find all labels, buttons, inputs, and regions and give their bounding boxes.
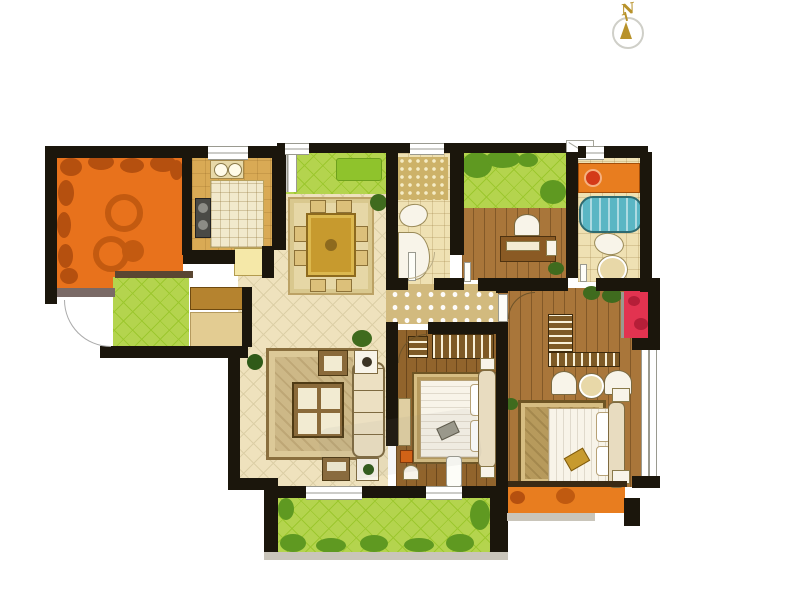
entry-threshold [115, 271, 193, 278]
terrace-plant [120, 158, 144, 173]
master-bath-door [580, 264, 587, 282]
master-bath-sink [584, 169, 602, 187]
garden-bush [404, 538, 434, 552]
stove-burner [198, 203, 208, 213]
wall [276, 486, 306, 498]
wall [462, 486, 492, 498]
balcony-plant [510, 491, 525, 504]
bathroom1-shower-area [398, 157, 448, 200]
wall [632, 476, 660, 488]
balcony-sill [507, 513, 595, 521]
bay-window [641, 350, 657, 476]
entry-floor [113, 277, 189, 348]
red-balcony-plant [634, 318, 648, 330]
entry-door-arc [64, 300, 111, 347]
armchair-cushion [324, 356, 342, 371]
wall [386, 278, 408, 290]
balcony-plant [556, 488, 575, 504]
plant [247, 354, 263, 370]
wall [624, 498, 640, 526]
wall [228, 356, 240, 484]
nightstand [480, 358, 495, 370]
side-table-decor [362, 357, 372, 367]
wall [392, 486, 426, 498]
bedroom2-wardrobe [432, 334, 494, 359]
window [208, 146, 248, 160]
dining-chair [310, 200, 326, 213]
dining-chair [310, 279, 326, 292]
refrigerator [234, 248, 263, 276]
master-door [498, 294, 508, 322]
garden-bush [280, 534, 306, 552]
terrace-table [122, 240, 144, 262]
plant [352, 330, 372, 347]
dining-table-centerpiece [325, 239, 337, 251]
coffee-table-pane [298, 388, 317, 409]
wall [434, 278, 464, 290]
study-door [464, 262, 471, 282]
terrace-chair [105, 194, 143, 232]
garden-bush [360, 535, 388, 552]
armchair [318, 350, 348, 376]
stove-burner [198, 220, 208, 230]
desk-chair [514, 214, 540, 236]
window [306, 486, 362, 500]
desk-monitor [506, 241, 540, 251]
wall [450, 143, 464, 255]
wall [45, 146, 57, 304]
window [285, 143, 309, 155]
floorplan-canvas: N [0, 0, 800, 611]
kitchen-sink-bowl [214, 163, 228, 177]
side-table [354, 350, 378, 374]
wall [496, 322, 508, 490]
wall [462, 143, 566, 153]
terrace-plant [58, 180, 74, 206]
coffee-table-pane [298, 413, 317, 434]
master-wardrobe-h [548, 352, 620, 367]
wall [183, 250, 235, 264]
wall [100, 346, 248, 358]
dining-chair [336, 279, 352, 292]
balcony-bench [336, 158, 382, 181]
terrace-plant [60, 268, 78, 284]
wall [182, 157, 192, 255]
compass-north-label: N [620, 1, 636, 18]
wall [396, 143, 410, 153]
wall [496, 283, 508, 293]
master-chair [551, 371, 577, 395]
terrace-plant [58, 244, 73, 268]
wall [362, 486, 394, 498]
red-balcony-window-line [621, 292, 624, 338]
red-balcony-plant [628, 296, 640, 306]
dining-chair [336, 200, 352, 213]
terrace-plant [57, 212, 71, 238]
garden-tree [518, 153, 538, 167]
bathtub [579, 196, 643, 233]
wall [478, 278, 568, 291]
garden-bush [316, 538, 346, 553]
wall [490, 486, 508, 552]
coffee-table-pane [321, 388, 340, 409]
wall [242, 287, 252, 347]
wall [386, 143, 398, 285]
balcony-threshold [505, 481, 627, 487]
dining-chair [355, 226, 368, 242]
plant [548, 262, 564, 275]
shoe-cabinet [190, 287, 246, 310]
terrace-plant [60, 158, 82, 176]
garden-sill [264, 552, 508, 560]
terrace-sill [57, 288, 115, 297]
window [586, 146, 604, 160]
compass-arrow-icon [620, 22, 632, 39]
entry-mat [190, 312, 244, 349]
plant [370, 194, 387, 211]
wall [566, 152, 578, 278]
nightstand [612, 388, 630, 402]
compass: N [604, 2, 650, 58]
wall [632, 338, 660, 350]
master-tea-table [579, 374, 604, 398]
wall [272, 146, 286, 250]
dining-chair [355, 250, 368, 266]
wall [640, 152, 652, 292]
garden-tree [540, 180, 566, 204]
kitchen-counter [210, 180, 264, 248]
master-wardrobe-v [548, 314, 573, 352]
wall [428, 322, 498, 334]
kitchen-sink-bowl [228, 163, 242, 177]
desk-cabinet [546, 240, 557, 256]
wall [262, 246, 274, 278]
garden-bush [446, 534, 474, 552]
window [426, 486, 462, 500]
nightstand [480, 466, 495, 478]
window [410, 143, 444, 155]
wall [648, 278, 660, 344]
garden-bush [278, 498, 294, 520]
garden-bush [470, 500, 490, 530]
